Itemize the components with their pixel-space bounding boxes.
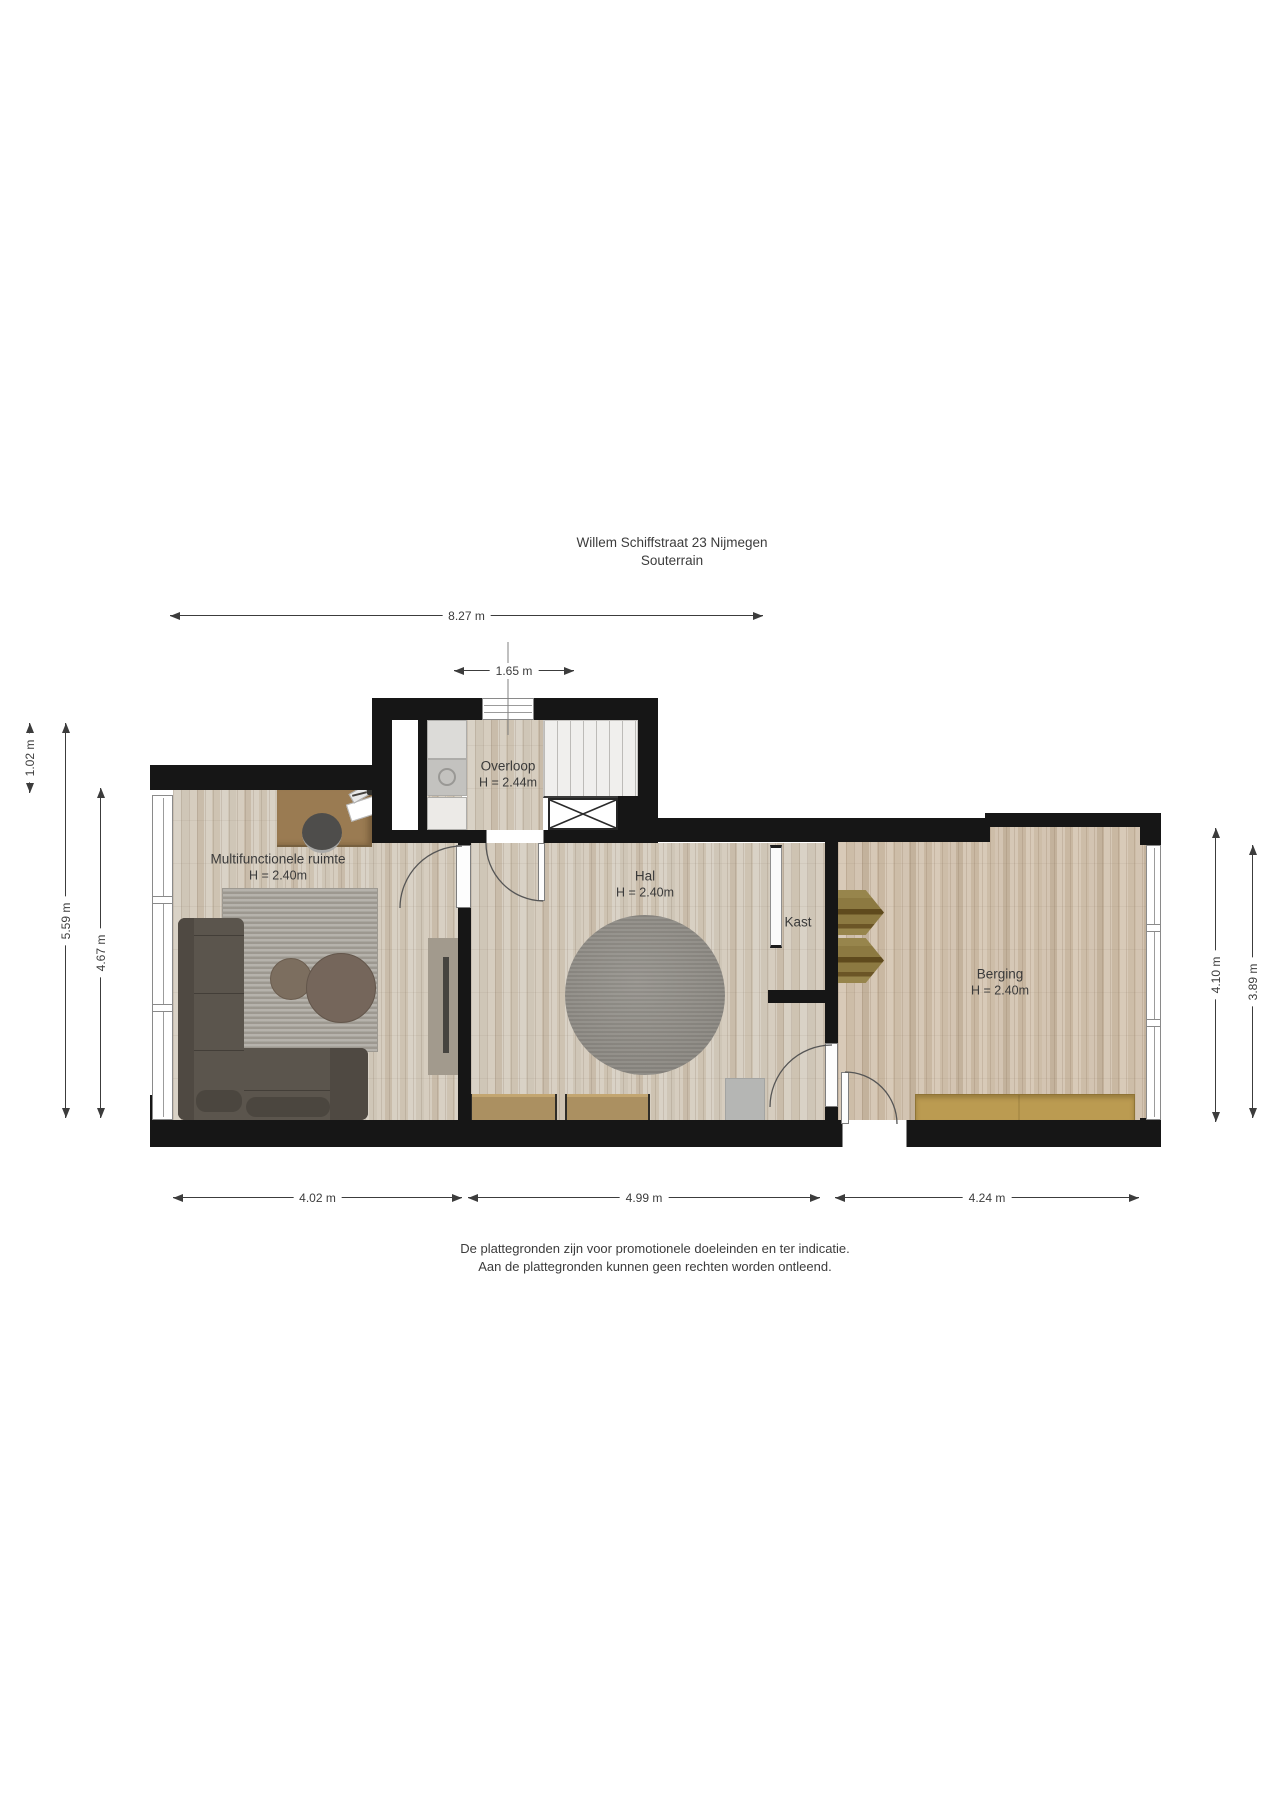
round-rug bbox=[565, 915, 725, 1075]
wall-corner-southeast bbox=[1140, 1118, 1161, 1147]
footer-disclaimer: De plattegronden zijn voor promotionele … bbox=[460, 1240, 850, 1276]
bench bbox=[470, 1094, 557, 1122]
sofa-bolster-cushion bbox=[246, 1097, 330, 1117]
void-cross-box bbox=[548, 798, 618, 830]
dimension-bottom-right: 4.24 m bbox=[835, 1197, 1139, 1198]
door-leaf-multifunctionele-ruimte bbox=[456, 845, 471, 908]
sofa-bolster-cushion bbox=[196, 1090, 242, 1112]
window-mullion bbox=[152, 896, 173, 904]
entry-opening-north bbox=[482, 698, 534, 720]
footer-line-1: De plattegronden zijn voor promotionele … bbox=[460, 1241, 850, 1256]
storage-sideboard bbox=[915, 1094, 1135, 1122]
window-glass-line bbox=[484, 705, 532, 706]
window-mullion bbox=[1146, 924, 1161, 932]
sofa-cushion-seam bbox=[194, 1050, 244, 1051]
window-mullion bbox=[1146, 1019, 1161, 1027]
room-label-kast: Kast bbox=[784, 914, 811, 931]
wall-overloop-east bbox=[638, 698, 658, 798]
wall-kast-south bbox=[768, 990, 825, 1003]
window-glass-line bbox=[484, 712, 532, 713]
wall-corner-northeast bbox=[1140, 813, 1161, 845]
wall-hal-berging-upper bbox=[825, 842, 838, 1043]
room-label-multifunctionele-ruimte: Multifunctionele ruimte H = 2.40m bbox=[210, 851, 345, 884]
sofa-backrest-left bbox=[178, 918, 194, 1120]
dimension-right-room: 3.89 m bbox=[1252, 845, 1253, 1118]
page-title: Willem Schiffstraat 23 Nijmegen Souterra… bbox=[576, 534, 767, 570]
washing-machine bbox=[427, 720, 467, 759]
door-leaf-berging bbox=[825, 1043, 838, 1107]
dimension-bottom-middle: 4.99 m bbox=[468, 1197, 820, 1198]
room-label-berging: Berging H = 2.40m bbox=[971, 966, 1029, 999]
dimension-bottom-left: 4.02 m bbox=[173, 1197, 462, 1198]
sliding-door-kast bbox=[770, 845, 782, 948]
door-leaf-overloop-hal bbox=[538, 843, 545, 901]
wall-berging-north bbox=[985, 813, 1161, 827]
window-mullion bbox=[152, 1004, 173, 1012]
sofa-cushion-seam bbox=[194, 993, 244, 994]
sofa-cushion-seam bbox=[244, 1090, 330, 1091]
office-chair bbox=[302, 813, 342, 853]
door-leaf-exterior bbox=[841, 1072, 849, 1124]
dimension-left-room: 4.67 m bbox=[100, 788, 101, 1118]
door-opening-exterior bbox=[842, 1120, 907, 1147]
window-glass-line bbox=[163, 798, 164, 1117]
wall-hal-berging-lower bbox=[825, 1107, 838, 1122]
room-label-overloop: Overloop H = 2.44m bbox=[479, 758, 537, 791]
wall-top-left bbox=[150, 765, 372, 790]
bench bbox=[565, 1094, 650, 1122]
wall-south bbox=[150, 1120, 1161, 1147]
room-label-hal: Hal H = 2.40m bbox=[616, 868, 674, 901]
dimension-left-total: 5.59 m bbox=[65, 723, 66, 1118]
doormat bbox=[725, 1078, 765, 1122]
footer-line-2: Aan de plattegronden kunnen geen rechten… bbox=[478, 1259, 831, 1274]
dimension-top-total: 8.27 m bbox=[170, 615, 763, 616]
window-west bbox=[152, 795, 173, 1120]
void-niche bbox=[392, 720, 418, 830]
laundry-counter bbox=[427, 797, 467, 830]
page-title-address: Willem Schiffstraat 23 Nijmegen bbox=[576, 535, 767, 550]
sofa-cushion-seam bbox=[194, 935, 244, 936]
dryer-drum-icon bbox=[438, 768, 456, 786]
dimension-right-total: 4.10 m bbox=[1215, 828, 1216, 1122]
door-opening-overloop-hal bbox=[486, 830, 544, 843]
dimension-top-entry: 1.65 m bbox=[454, 670, 574, 671]
sofa-chaise-end bbox=[330, 1048, 368, 1120]
page-title-floor: Souterrain bbox=[641, 553, 703, 568]
wall-niche-divider bbox=[418, 720, 427, 830]
wall-hal-north bbox=[658, 818, 990, 842]
coffee-table-large bbox=[306, 953, 376, 1023]
tv-console bbox=[443, 957, 449, 1053]
window-east bbox=[1146, 845, 1161, 1120]
stairs bbox=[543, 720, 638, 798]
dimension-left-offset: 1.02 m bbox=[29, 723, 30, 793]
window-glass-line bbox=[1154, 848, 1155, 1117]
floor-plan-page: Willem Schiffstraat 23 Nijmegen Souterra… bbox=[0, 0, 1280, 1810]
